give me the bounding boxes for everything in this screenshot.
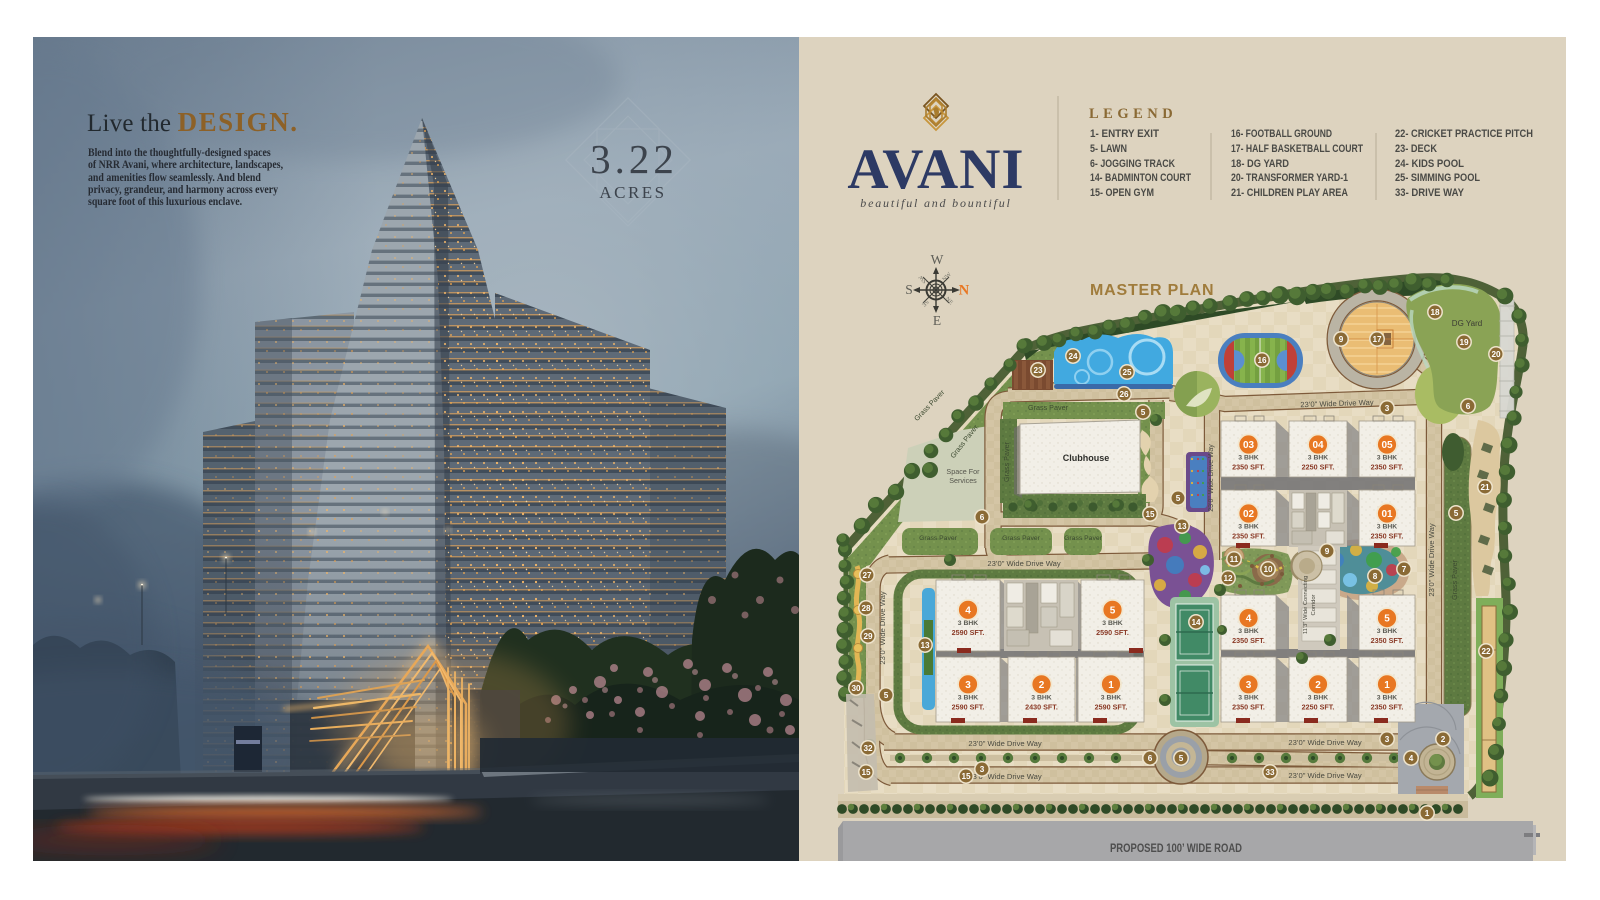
svg-text:15- OPEN GYM: 15- OPEN GYM [1090, 187, 1154, 199]
svg-text:23- DECK: 23- DECK [1395, 143, 1437, 155]
svg-text:3 BHK: 3 BHK [1238, 455, 1258, 462]
svg-text:3: 3 [980, 765, 985, 774]
svg-text:10: 10 [1263, 565, 1273, 574]
svg-text:03: 03 [1243, 440, 1255, 451]
svg-text:3 BHK: 3 BHK [1238, 524, 1258, 531]
svg-text:5- LAWN: 5- LAWN [1090, 143, 1127, 155]
svg-text:3 BHK: 3 BHK [1377, 628, 1397, 635]
svg-text:04: 04 [1312, 440, 1324, 451]
svg-text:4: 4 [1409, 754, 1414, 763]
svg-text:16: 16 [1257, 356, 1267, 365]
svg-text:3 BHK: 3 BHK [1101, 694, 1121, 701]
svg-text:3 BHK: 3 BHK [1238, 628, 1258, 635]
svg-text:02: 02 [1243, 509, 1255, 520]
svg-text:DG Yard: DG Yard [1452, 319, 1482, 328]
svg-text:3 BHK: 3 BHK [1377, 694, 1397, 701]
svg-text:33: 33 [1265, 768, 1275, 777]
svg-text:3: 3 [965, 680, 971, 691]
svg-text:24- KIDS POOL: 24- KIDS POOL [1395, 158, 1464, 170]
svg-text:17: 17 [1372, 335, 1382, 344]
svg-text:5: 5 [1179, 754, 1184, 763]
svg-text:2590 SFT.: 2590 SFT. [1095, 702, 1128, 711]
svg-text:16- FOOTBALL GROUND: 16- FOOTBALL GROUND [1231, 128, 1332, 140]
svg-text:4: 4 [965, 605, 971, 616]
svg-text:05: 05 [1381, 440, 1393, 451]
svg-text:21: 21 [1480, 483, 1490, 492]
svg-text:3 BHK: 3 BHK [1102, 620, 1122, 627]
svg-text:23’0" Wide Drive Way: 23’0" Wide Drive Way [968, 739, 1042, 748]
svg-text:23’0" Wide Drive Way: 23’0" Wide Drive Way [1208, 444, 1215, 512]
svg-text:E: E [933, 313, 941, 328]
svg-text:1: 1 [1384, 680, 1390, 691]
svg-text:1- ENTRY EXIT: 1- ENTRY EXIT [1090, 128, 1159, 140]
svg-text:Clubhouse: Clubhouse [1063, 453, 1110, 463]
svg-text:01: 01 [1381, 509, 1393, 520]
svg-text:Services: Services [949, 476, 977, 485]
svg-text:23: 23 [1033, 366, 1043, 375]
svg-text:Grass Paver: Grass Paver [1028, 403, 1069, 412]
svg-text:11’3" Wide Connecting: 11’3" Wide Connecting [1303, 576, 1309, 634]
svg-text:3 BHK: 3 BHK [1031, 694, 1051, 701]
svg-text:Grass Paver: Grass Paver [1064, 535, 1103, 542]
svg-text:1: 1 [1108, 680, 1114, 691]
svg-text:3 BHK: 3 BHK [958, 620, 978, 627]
svg-text:28: 28 [861, 604, 871, 613]
svg-text:4: 4 [1246, 614, 1252, 625]
svg-text:18: 18 [1430, 308, 1440, 317]
svg-text:2350 SFT.: 2350 SFT. [1232, 532, 1265, 541]
svg-text:Grass Paver: Grass Paver [1002, 535, 1041, 542]
svg-text:22- CRICKET PRACTICE PITCH: 22- CRICKET PRACTICE PITCH [1395, 128, 1533, 140]
svg-text:25- SIMMING POOL: 25- SIMMING POOL [1395, 172, 1480, 184]
svg-text:2250 SFT.: 2250 SFT. [1302, 702, 1335, 711]
svg-text:13: 13 [920, 641, 930, 650]
svg-text:23’0" Wide Drive Way: 23’0" Wide Drive Way [1427, 523, 1436, 597]
svg-text:2350 SFT.: 2350 SFT. [1371, 463, 1404, 472]
svg-text:2590 SFT.: 2590 SFT. [1096, 628, 1129, 637]
svg-text:23’0" Wide Drive Way: 23’0" Wide Drive Way [1288, 771, 1362, 780]
svg-text:26: 26 [1119, 390, 1129, 399]
svg-text:7: 7 [1402, 565, 1407, 574]
svg-text:5: 5 [1141, 408, 1146, 417]
svg-text:beautiful and bountiful: beautiful and bountiful [860, 196, 1011, 210]
svg-text:20: 20 [1491, 350, 1501, 359]
svg-text:9: 9 [1339, 335, 1344, 344]
svg-text:3: 3 [1385, 735, 1390, 744]
svg-text:12: 12 [1223, 574, 1233, 583]
svg-text:2350 SFT.: 2350 SFT. [1371, 532, 1404, 541]
svg-text:3 BHK: 3 BHK [1377, 455, 1397, 462]
svg-text:14: 14 [1191, 618, 1201, 627]
svg-text:3 BHK: 3 BHK [1308, 694, 1328, 701]
svg-text:6: 6 [1148, 754, 1153, 763]
svg-text:33- DRIVE WAY: 33- DRIVE WAY [1395, 187, 1465, 199]
svg-text:29: 29 [863, 632, 873, 641]
svg-text:5: 5 [1454, 509, 1459, 518]
svg-text:13: 13 [1177, 522, 1187, 531]
svg-text:3: 3 [1246, 680, 1252, 691]
svg-text:5: 5 [1384, 614, 1390, 625]
svg-text:5: 5 [884, 691, 889, 700]
svg-text:8: 8 [1373, 572, 1378, 581]
svg-text:17- HALF BASKETBALL COURT: 17- HALF BASKETBALL COURT [1231, 143, 1363, 155]
svg-text:2350 SFT.: 2350 SFT. [1371, 636, 1404, 645]
svg-text:18- DG YARD: 18- DG YARD [1231, 158, 1289, 170]
svg-text:24: 24 [1068, 352, 1078, 361]
svg-text:Space For: Space For [946, 467, 980, 476]
svg-text:27: 27 [862, 571, 872, 580]
svg-text:3 BHK: 3 BHK [1308, 455, 1328, 462]
svg-text:23’0" Wide Drive Way: 23’0" Wide Drive Way [987, 559, 1061, 568]
svg-text:1: 1 [1425, 809, 1430, 818]
svg-text:32: 32 [863, 744, 873, 753]
svg-text:2350 SFT.: 2350 SFT. [1232, 702, 1265, 711]
svg-text:6- JOGGING TRACK: 6- JOGGING TRACK [1090, 158, 1175, 170]
svg-text:2350 SFT.: 2350 SFT. [1232, 463, 1265, 472]
svg-text:AVANI: AVANI [847, 138, 1024, 201]
svg-text:23’0" Wide Drive Way: 23’0" Wide Drive Way [878, 591, 887, 665]
svg-text:2250 SFT.: 2250 SFT. [1302, 463, 1335, 472]
svg-text:2: 2 [1315, 680, 1321, 691]
svg-text:2590 SFT.: 2590 SFT. [952, 702, 985, 711]
svg-text:3 BHK: 3 BHK [1238, 694, 1258, 701]
svg-text:LEGEND: LEGEND [1089, 106, 1177, 122]
svg-text:PROPOSED 100’ WIDE ROAD: PROPOSED 100’ WIDE ROAD [1110, 841, 1242, 855]
svg-text:2: 2 [1039, 680, 1045, 691]
svg-text:30: 30 [851, 684, 861, 693]
svg-text:15: 15 [861, 768, 871, 777]
svg-text:Corridor: Corridor [1311, 594, 1317, 615]
svg-text:3 BHK: 3 BHK [1377, 524, 1397, 531]
svg-text:6: 6 [980, 513, 985, 522]
svg-text:5: 5 [1176, 494, 1181, 503]
svg-text:5: 5 [1110, 605, 1116, 616]
svg-text:2590 SFT.: 2590 SFT. [952, 628, 985, 637]
svg-text:Grass Paver: Grass Paver [1002, 441, 1011, 482]
svg-text:23’0" Wide Drive Way: 23’0" Wide Drive Way [1288, 738, 1362, 747]
svg-text:15: 15 [1145, 510, 1155, 519]
svg-text:3 BHK: 3 BHK [958, 694, 978, 701]
svg-text:Grass Paver: Grass Paver [919, 535, 958, 542]
svg-text:19: 19 [1459, 338, 1469, 347]
svg-text:21- CHILDREN PLAY AREA: 21- CHILDREN PLAY AREA [1231, 187, 1348, 199]
svg-text:3: 3 [1385, 404, 1390, 413]
svg-text:2350 SFT.: 2350 SFT. [1232, 636, 1265, 645]
svg-text:9: 9 [1325, 547, 1330, 556]
svg-text:14- BADMINTON COURT: 14- BADMINTON COURT [1090, 172, 1191, 184]
svg-text:2350 SFT.: 2350 SFT. [1371, 702, 1404, 711]
svg-text:20- TRANSFORMER YARD-1: 20- TRANSFORMER YARD-1 [1231, 172, 1348, 184]
svg-text:6: 6 [1466, 402, 1471, 411]
svg-text:11: 11 [1230, 555, 1239, 564]
svg-text:2430 SFT.: 2430 SFT. [1025, 702, 1058, 711]
svg-text:15: 15 [961, 772, 971, 781]
svg-text:22: 22 [1481, 647, 1491, 656]
svg-text:Grass Paver: Grass Paver [1450, 559, 1459, 600]
svg-text:25: 25 [1122, 368, 1132, 377]
svg-text:2: 2 [1441, 735, 1446, 744]
